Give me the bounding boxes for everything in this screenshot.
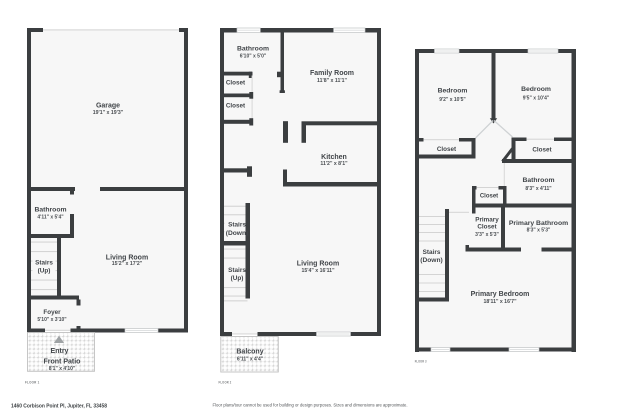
svg-text:Kitchen: Kitchen (321, 154, 347, 161)
svg-text:FLOOR 1: FLOOR 1 (25, 380, 40, 384)
svg-text:FLOOR 2: FLOOR 2 (219, 380, 232, 384)
svg-text:Stairs: Stairs (228, 222, 246, 229)
svg-text:9'5" x 10'4": 9'5" x 10'4" (523, 95, 550, 101)
svg-text:4'11" x 5'4": 4'11" x 5'4" (37, 215, 64, 221)
svg-text:Living Room: Living Room (297, 261, 339, 268)
svg-text:Foyer: Foyer (43, 309, 61, 316)
svg-text:18'11" x 16'7": 18'11" x 16'7" (483, 299, 517, 305)
svg-text:Closet: Closet (437, 146, 457, 153)
svg-text:Closet: Closet (477, 223, 497, 230)
svg-text:Garage: Garage (96, 103, 120, 110)
svg-text:Stairs: Stairs (423, 249, 441, 256)
svg-text:Bathroom: Bathroom (237, 45, 269, 52)
svg-text:11'8" x 11'1": 11'8" x 11'1" (317, 78, 347, 84)
svg-text:1460 Corbison Point Pl, Jupite: 1460 Corbison Point Pl, Jupiter, FL 3345… (11, 403, 107, 409)
svg-text:Floor plans/tour cannot be use: Floor plans/tour cannot be used for buil… (213, 403, 408, 408)
svg-text:Stairs: Stairs (35, 259, 53, 266)
svg-text:(Down): (Down) (226, 230, 249, 237)
svg-text:Closet: Closet (532, 147, 552, 154)
svg-text:9'2" x 10'5": 9'2" x 10'5" (439, 97, 466, 103)
svg-text:8'3" x 5'3": 8'3" x 5'3" (527, 227, 551, 233)
svg-text:19'1" x 19'3": 19'1" x 19'3" (93, 110, 124, 116)
svg-text:Front Patio: Front Patio (44, 359, 81, 366)
svg-text:8'1" x 4'10": 8'1" x 4'10" (49, 366, 76, 372)
svg-text:Bathroom: Bathroom (522, 177, 554, 184)
svg-text:Primary Bathroom: Primary Bathroom (509, 220, 568, 227)
svg-text:Bathroom: Bathroom (34, 206, 66, 213)
svg-text:Closet: Closet (480, 193, 498, 199)
svg-text:Closet: Closet (226, 103, 246, 110)
svg-text:Bedroom: Bedroom (438, 87, 468, 94)
svg-text:Bedroom: Bedroom (521, 86, 551, 93)
svg-text:8'3" x 4'11": 8'3" x 4'11" (525, 186, 552, 192)
svg-text:6'11" x 4'4": 6'11" x 4'4" (237, 357, 264, 363)
svg-text:3'3" x 5'3": 3'3" x 5'3" (475, 232, 499, 238)
svg-text:Primary Bedroom: Primary Bedroom (471, 291, 530, 298)
svg-text:Entry: Entry (51, 348, 69, 355)
svg-text:Primary: Primary (475, 216, 499, 223)
svg-text:5'10" x 3'10": 5'10" x 3'10" (37, 317, 67, 323)
svg-text:Stairs: Stairs (228, 267, 246, 274)
svg-text:Closet: Closet (226, 80, 246, 87)
svg-text:(Up): (Up) (231, 275, 244, 282)
svg-text:(Down): (Down) (420, 257, 443, 264)
svg-text:FLOOR 3: FLOOR 3 (415, 359, 427, 363)
svg-text:6'10" x 5'0": 6'10" x 5'0" (240, 53, 267, 59)
svg-text:15'2" x 17'2": 15'2" x 17'2" (112, 261, 143, 267)
svg-text:Family Room: Family Room (310, 70, 354, 77)
svg-text:11'2" x 8'1": 11'2" x 8'1" (320, 161, 348, 167)
svg-text:Balcony: Balcony (236, 349, 263, 356)
svg-text:15'4" x 16'11": 15'4" x 16'11" (301, 268, 335, 274)
svg-text:(Up): (Up) (38, 268, 51, 275)
